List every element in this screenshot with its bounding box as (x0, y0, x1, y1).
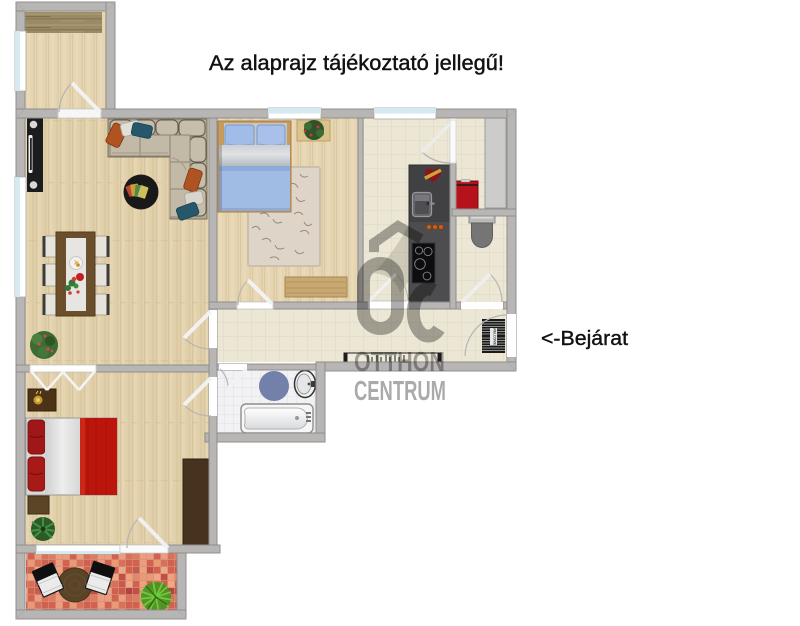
svg-text:OTTHON: OTTHON (354, 346, 445, 377)
svg-text:<-Bejárat: <-Bejárat (541, 328, 628, 350)
svg-text:CENTRUM: CENTRUM (354, 375, 446, 406)
svg-text:WELCOME: WELCOME (493, 328, 497, 346)
svg-text:Az alaprajz tájékoztató jelleg: Az alaprajz tájékoztató jellegű! (209, 51, 504, 75)
